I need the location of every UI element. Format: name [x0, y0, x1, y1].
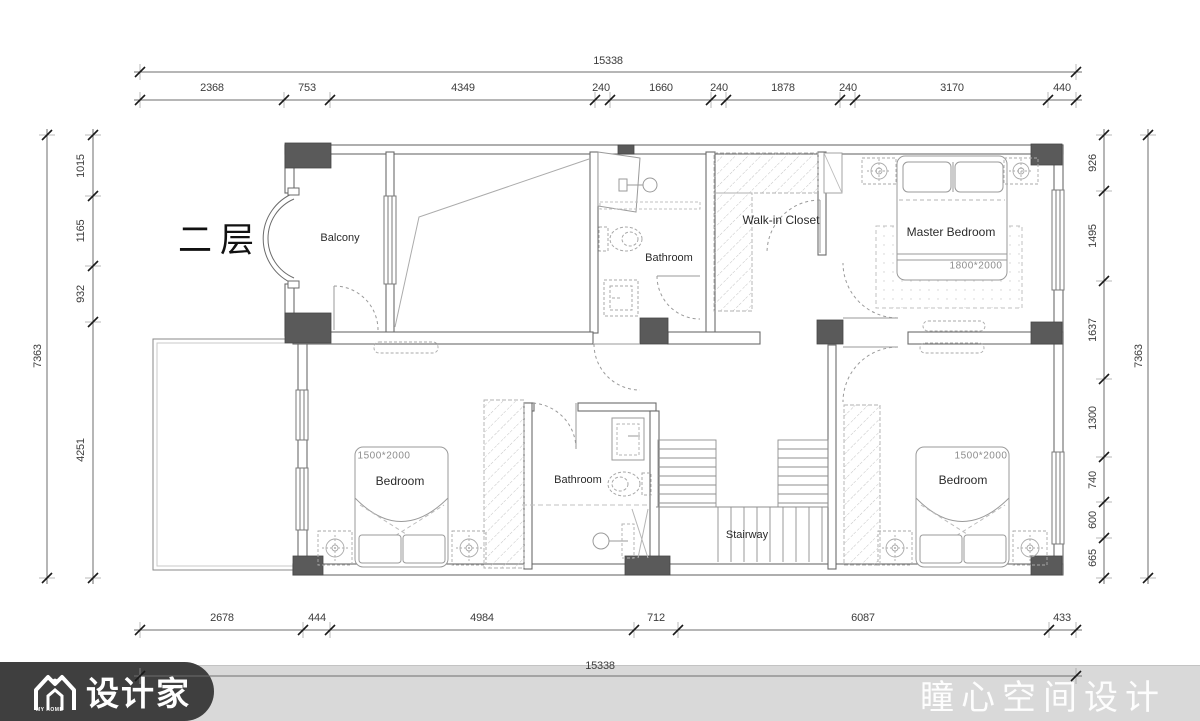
dimension-lines	[39, 64, 1156, 684]
bedroom-left-bed-icon	[355, 447, 448, 567]
dim-left-total: 7363	[32, 344, 44, 368]
dim-top-seg: 240	[592, 82, 610, 94]
home-logo-icon: MY HOME	[30, 670, 80, 714]
dim-top-total: 15338	[593, 55, 623, 67]
dim-bottom-seg: 712	[647, 612, 665, 624]
room-label-walkin-closet: Walk-in Closet	[743, 213, 820, 227]
room-label-balcony: Balcony	[320, 232, 359, 244]
dim-bottom-seg: 2678	[210, 612, 234, 624]
terrace-outline	[153, 339, 293, 570]
dim-bottom-seg: 4984	[470, 612, 494, 624]
dim-top-seg: 240	[839, 82, 857, 94]
room-label-bedroom-left: Bedroom	[376, 474, 425, 488]
room-label-bathroom-bottom: Bathroom	[554, 474, 602, 486]
bedroom-right-bed-icon	[916, 447, 1009, 567]
door-corridor	[594, 344, 640, 390]
void-roof-lines	[395, 159, 589, 327]
wardrobes	[484, 153, 880, 568]
dim-right-seg: 1300	[1087, 406, 1099, 430]
window-right-master	[1052, 190, 1064, 290]
dim-left-seg: 1015	[75, 154, 87, 178]
door-bedroom-right	[843, 347, 898, 402]
walls	[285, 145, 1063, 575]
stairs-icon	[656, 440, 828, 562]
window-right-bedroom	[1052, 452, 1064, 544]
bed-size-master: 1800*2000	[950, 261, 1003, 272]
dim-right-seg: 600	[1087, 511, 1099, 529]
bedroom-right-nightstands	[878, 531, 1047, 565]
brand-pill: MY HOME 设计家	[0, 662, 214, 721]
dim-top-seg: 4349	[451, 82, 475, 94]
dim-top-seg: 440	[1053, 82, 1071, 94]
dim-top-seg: 240	[710, 82, 728, 94]
bay-window-arc	[263, 188, 299, 288]
dim-top-seg: 1878	[771, 82, 795, 94]
dim-left-seg: 1165	[75, 220, 87, 243]
bed-size-right: 1500*2000	[955, 451, 1008, 462]
room-label-bathroom-top: Bathroom	[645, 252, 693, 264]
floor-plan-drawing	[0, 0, 1200, 721]
dim-bottom-seg: 6087	[851, 612, 875, 624]
studio-name: 瞳心空间设计	[920, 670, 1166, 719]
pillars	[285, 143, 1062, 575]
windows	[296, 190, 1064, 544]
brand-name: 设计家	[86, 667, 191, 715]
window-balcony-divider	[384, 196, 396, 284]
room-label-stairway: Stairway	[726, 529, 768, 541]
floorplan-page: 瞳心空间设计 MY HOME 设计家	[0, 0, 1200, 721]
dim-top-seg: 2368	[200, 82, 224, 94]
dim-bottom-total: 15338	[585, 660, 615, 672]
room-label-master-bedroom: Master Bedroom	[907, 225, 996, 239]
door-master-bedroom	[843, 263, 898, 318]
dim-top-seg: 3170	[940, 82, 964, 94]
dim-bottom-seg: 433	[1053, 612, 1071, 624]
dim-left-seg: 932	[75, 285, 87, 303]
brand-tagline: MY HOME	[36, 707, 63, 713]
floor-title: 二层	[178, 213, 262, 262]
door-bathroom-bottom	[530, 403, 576, 449]
master-nightstands	[824, 153, 1038, 353]
dim-left-seg: 4251	[75, 438, 87, 462]
dim-top-seg: 753	[298, 82, 316, 94]
dim-right-total: 7363	[1133, 344, 1145, 368]
dim-top-seg: 1660	[649, 82, 673, 94]
bathroom-bottom-fixtures	[522, 418, 651, 558]
dim-right-seg: 665	[1087, 549, 1099, 567]
window-left-1	[296, 390, 308, 440]
room-label-bedroom-right: Bedroom	[939, 473, 988, 487]
doors	[334, 200, 898, 449]
dim-right-seg: 1637	[1087, 318, 1099, 342]
door-bathroom-top	[657, 276, 700, 319]
dim-bottom-seg: 444	[308, 612, 326, 624]
dim-right-seg: 926	[1087, 154, 1099, 172]
door-balcony	[334, 286, 378, 330]
dim-right-seg: 1495	[1087, 224, 1099, 248]
dim-right-seg: 740	[1087, 471, 1099, 489]
window-left-2	[296, 468, 308, 530]
bed-size-left: 1500*2000	[358, 451, 411, 462]
bathroom-top-fixtures	[598, 152, 700, 316]
